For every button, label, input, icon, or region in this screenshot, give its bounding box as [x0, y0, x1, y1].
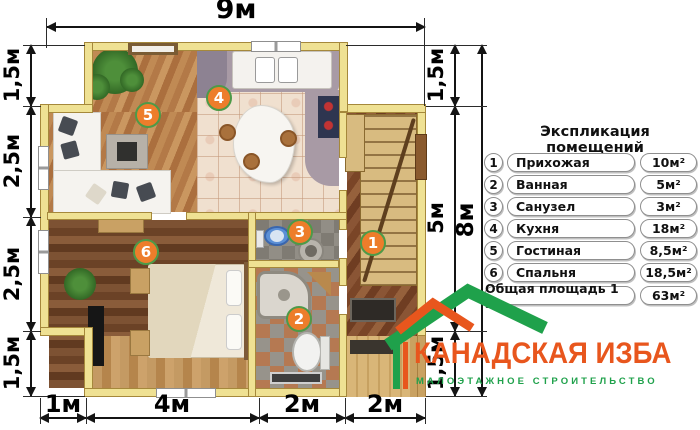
legend-row-name: Кухня — [507, 219, 635, 238]
bed-pillow — [226, 270, 242, 306]
extension-line — [346, 45, 487, 46]
dim-label-bottom-1: 1м — [33, 392, 93, 416]
floorplan-page: 1 2 3 4 5 6 9м 1,5м 2,5м 2,5м 1,5м 1,5м … — [0, 0, 700, 430]
wall-mid-horizontal-right — [186, 212, 347, 220]
window-kitchen-top — [251, 41, 301, 52]
dim-label-right-1: 1,5м — [424, 45, 448, 105]
legend-row-number: 6 — [484, 263, 503, 282]
extension-line — [40, 398, 41, 424]
extension-line — [86, 398, 87, 424]
legend-row-number: 1 — [484, 153, 503, 172]
room-marker-kitchen: 4 — [206, 85, 232, 111]
extension-line — [23, 45, 85, 46]
dim-label-bottom-3: 2м — [272, 392, 332, 416]
wall-left — [40, 104, 49, 336]
dim-label-left-1: 1,5м — [0, 45, 24, 105]
wall-shelf-front — [132, 46, 174, 52]
legend-row-area: 8,5м² — [640, 241, 697, 260]
extension-line — [426, 106, 487, 107]
legend-row-number: 2 — [484, 175, 503, 194]
extension-line — [426, 396, 487, 397]
legend-row-name: Спальня — [507, 263, 635, 282]
room-marker-living: 5 — [135, 102, 161, 128]
legend-row-area: 18м² — [640, 219, 697, 238]
wc-sink-basin — [305, 245, 317, 257]
plant — [120, 68, 144, 92]
extension-line — [23, 106, 41, 107]
bed-pillow — [226, 314, 242, 350]
room-marker-bedroom: 6 — [133, 239, 159, 265]
legend-row-name: Гостиная — [507, 241, 635, 260]
bath-toilet-tank — [320, 336, 330, 370]
dim-label-left-3: 2,5м — [0, 244, 24, 304]
logo-bar-green — [393, 342, 400, 389]
wall-top — [84, 42, 346, 51]
dim-label-right-2: 5м — [424, 188, 448, 248]
dim-line-left-2 — [30, 106, 32, 217]
dim-label-right-outer: 8м — [454, 190, 478, 250]
wall-mid-horizontal-left — [47, 212, 152, 220]
dim-label-bottom-4: 2м — [355, 392, 415, 416]
extension-line — [23, 217, 41, 218]
wall-bath-hall-mid — [339, 258, 347, 286]
legend-row-number: 3 — [484, 197, 503, 216]
wall-hallway-top — [339, 104, 426, 113]
corner-shelf — [307, 272, 331, 296]
stove — [318, 96, 339, 138]
room-marker-bathroom: 2 — [286, 306, 312, 332]
dim-label-bottom-2: 4м — [142, 392, 202, 416]
stool — [219, 124, 236, 141]
extension-line — [259, 398, 260, 424]
logo-subtitle: МАЛОЭТАЖНОЕ СТРОИТЕЛЬСТВО — [416, 376, 658, 387]
legend-row-name: Прихожая — [507, 153, 635, 172]
window-left-upper — [38, 146, 49, 190]
wall-wc-bath-divider — [248, 260, 339, 268]
logo-bar-orange — [403, 342, 408, 389]
stair-landing — [345, 114, 365, 172]
entry-door — [415, 134, 427, 180]
nightstand — [130, 268, 150, 294]
legend-title: Экспликация помещений — [500, 124, 690, 156]
wc-toilet-lid — [270, 230, 284, 242]
dim-label-left-2: 2,5м — [0, 131, 24, 191]
wall-bath-hall-bottom — [339, 314, 347, 397]
dim-label-top: 9м — [206, 0, 266, 22]
extension-line — [46, 18, 47, 48]
wall-kitchen-right-exterior — [339, 42, 348, 112]
legend-row-area: 3м² — [640, 197, 697, 216]
stool — [243, 153, 260, 170]
sofa-pillow — [111, 181, 130, 200]
dim-line-right-1 — [454, 45, 456, 106]
dim-line-left-3 — [30, 217, 32, 331]
legend-row-name: Санузел — [507, 197, 635, 216]
legend-row-name: Ванная — [507, 175, 635, 194]
wall-top-left-vertical — [84, 42, 93, 112]
extension-line — [425, 398, 426, 424]
wall-kitchen-hall — [339, 112, 347, 158]
bath-mat — [270, 372, 322, 384]
legend-total-area: 63м² — [640, 286, 697, 305]
legend-row-number: 5 — [484, 241, 503, 260]
window-left-lower — [38, 230, 49, 274]
kitchen-sink — [255, 57, 275, 83]
coffee-table-top — [117, 142, 137, 161]
legend-row-area: 10м² — [640, 153, 697, 172]
legend-row-number: 4 — [484, 219, 503, 238]
extension-line — [345, 398, 346, 424]
bath-toilet-bowl — [292, 332, 322, 372]
dim-line-left-1 — [30, 45, 32, 106]
wc-toilet-tank — [256, 230, 264, 248]
wall-kitchen-hall-lower — [339, 190, 347, 230]
legend-row-area: 18,5м² — [640, 263, 697, 282]
dim-label-left-4: 1,5м — [0, 333, 24, 393]
bench — [98, 218, 144, 233]
kitchen-sink — [278, 57, 298, 83]
dim-line-top — [47, 26, 425, 28]
logo-title: КАНАДСКАЯ ИЗБА — [414, 339, 671, 369]
room-marker-hallway: 1 — [360, 230, 386, 256]
plant — [64, 268, 96, 300]
shower-drain — [278, 289, 290, 301]
dim-line-left-4 — [30, 331, 32, 396]
extension-line — [23, 331, 41, 332]
stool — [280, 130, 297, 147]
legend-row-area: 5м² — [640, 175, 697, 194]
nightstand — [130, 330, 150, 356]
wall-bedroom-bath — [248, 212, 256, 397]
wall-bottom-left-vertical — [84, 327, 93, 397]
room-marker-wc: 3 — [287, 219, 313, 245]
